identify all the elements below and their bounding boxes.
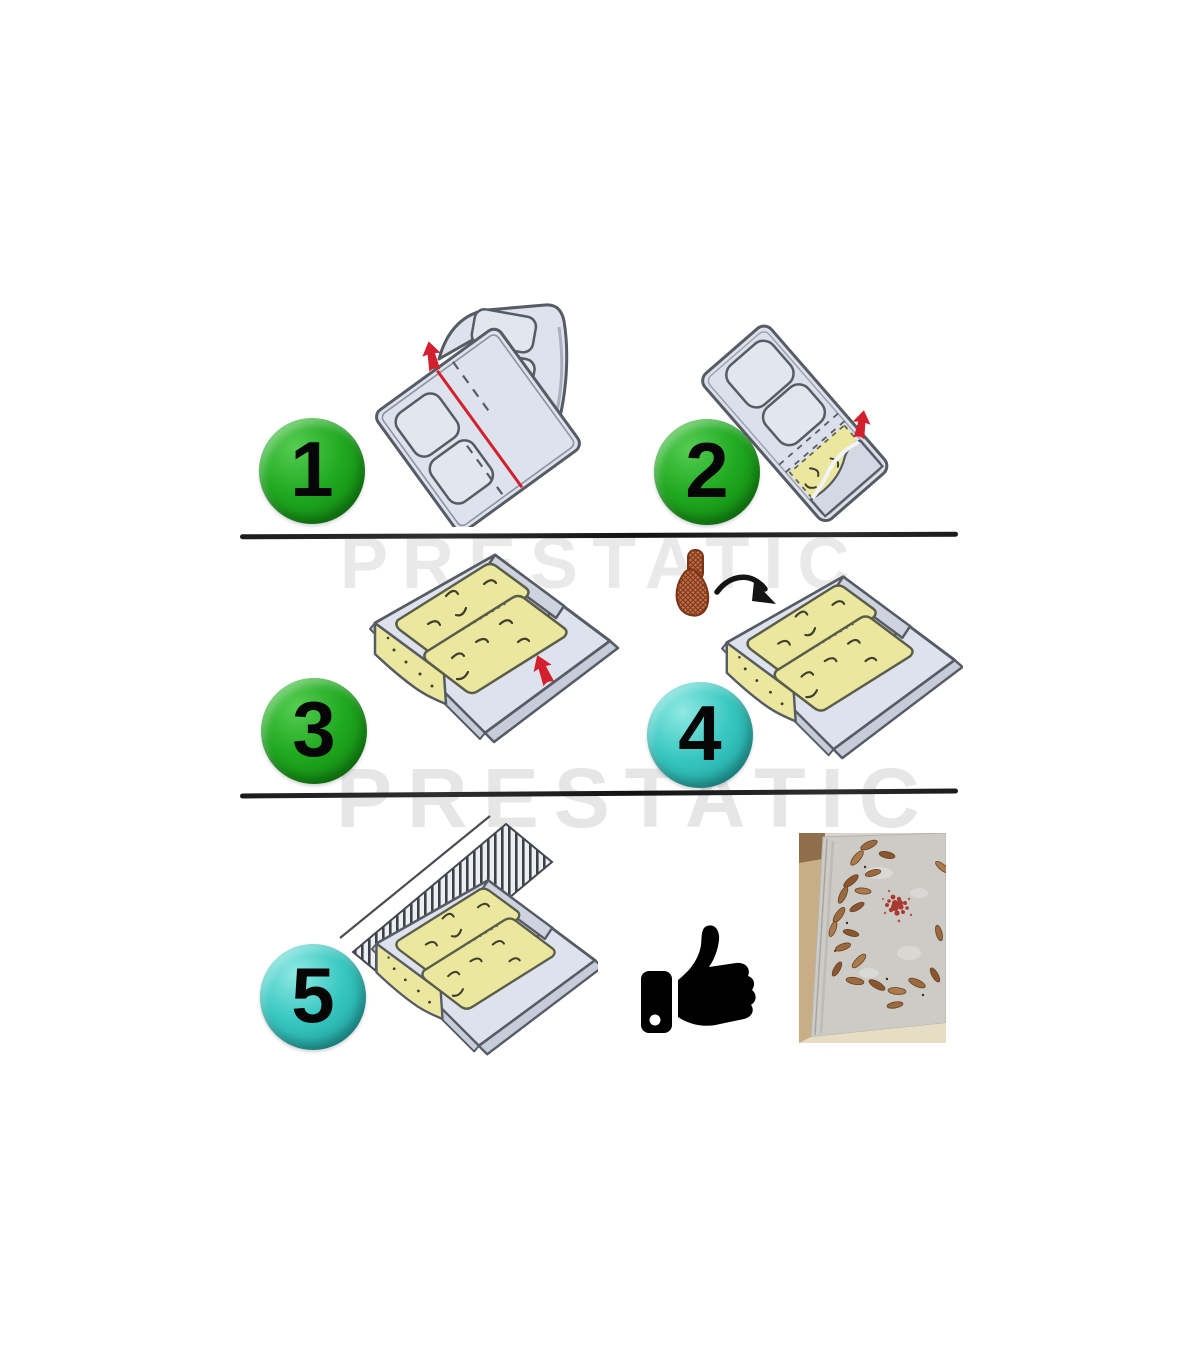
step1-unfold-sheet-illustration bbox=[373, 303, 611, 527]
assembled-trap bbox=[722, 577, 963, 758]
result-photo-cockroaches-on-glue-board bbox=[799, 833, 946, 1043]
step-number: 1 bbox=[290, 424, 333, 515]
step-number: 5 bbox=[291, 950, 334, 1041]
step-number: 4 bbox=[678, 688, 721, 779]
step5-place-against-wall-illustration bbox=[338, 812, 598, 1064]
step-number: 3 bbox=[292, 684, 335, 775]
step-number: 2 bbox=[685, 425, 728, 516]
step-badge-4: 4 bbox=[647, 682, 753, 788]
step-badge-3: 3 bbox=[261, 678, 367, 784]
assembled-trap bbox=[372, 880, 598, 1054]
step-badge-2: 2 bbox=[654, 419, 760, 525]
step3-folded-trap-illustration bbox=[368, 546, 620, 748]
assembled-trap bbox=[370, 555, 618, 742]
step-badge-5: 5 bbox=[260, 944, 366, 1050]
instruction-sheet: PRESTATIC PRESTATIC 1 2 3 4 5 bbox=[0, 0, 1200, 1372]
bait-pellet-icon bbox=[677, 550, 709, 616]
thumbs-up-icon bbox=[636, 916, 762, 1042]
step-badge-1: 1 bbox=[259, 418, 365, 524]
